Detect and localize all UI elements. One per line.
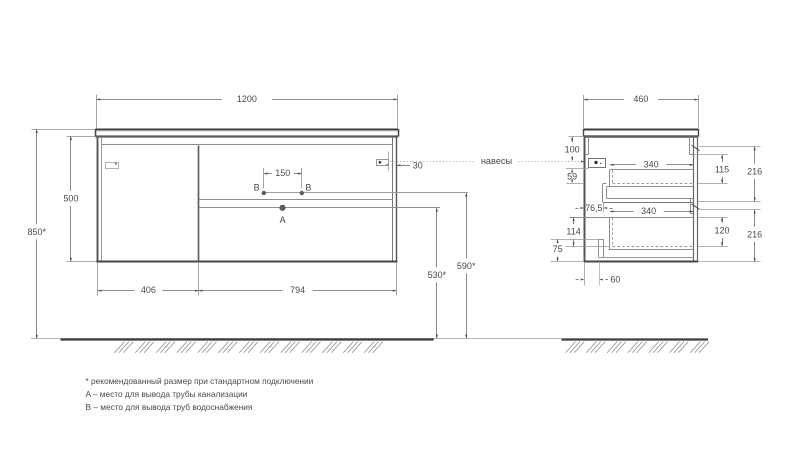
svg-text:216: 216 [747, 166, 762, 176]
svg-text:500: 500 [63, 194, 78, 204]
svg-text:590*: 590* [457, 261, 476, 271]
svg-text:114: 114 [566, 227, 580, 237]
svg-text:59: 59 [567, 172, 577, 182]
svg-text:216: 216 [747, 229, 762, 239]
svg-text:340: 340 [644, 159, 659, 169]
svg-text:B – место для вывода труб водо: B – место для вывода труб водоснабжения [86, 402, 253, 412]
svg-text:340: 340 [641, 206, 656, 216]
svg-text:A – место для вывода трубы кан: A – место для вывода трубы канализации [86, 389, 248, 399]
svg-text:530*: 530* [428, 270, 447, 280]
svg-text:794: 794 [290, 285, 305, 295]
svg-text:B: B [305, 182, 311, 192]
svg-text:1200: 1200 [237, 94, 257, 104]
svg-text:120: 120 [714, 226, 729, 236]
svg-text:100: 100 [565, 145, 580, 155]
svg-text:850*: 850* [28, 227, 47, 237]
svg-text:406: 406 [141, 285, 156, 295]
svg-text:115: 115 [715, 165, 729, 175]
svg-text:навесы: навесы [481, 156, 512, 166]
svg-text:75: 75 [553, 244, 563, 254]
svg-text:60: 60 [610, 274, 620, 284]
svg-text:460: 460 [633, 94, 648, 104]
svg-text:B: B [254, 182, 260, 192]
svg-text:76,5: 76,5 [585, 203, 602, 213]
svg-text:A: A [280, 215, 286, 225]
svg-text:150: 150 [275, 168, 290, 178]
svg-text:* рекомендованный размер при с: * рекомендованный размер при стандартном… [86, 376, 314, 386]
